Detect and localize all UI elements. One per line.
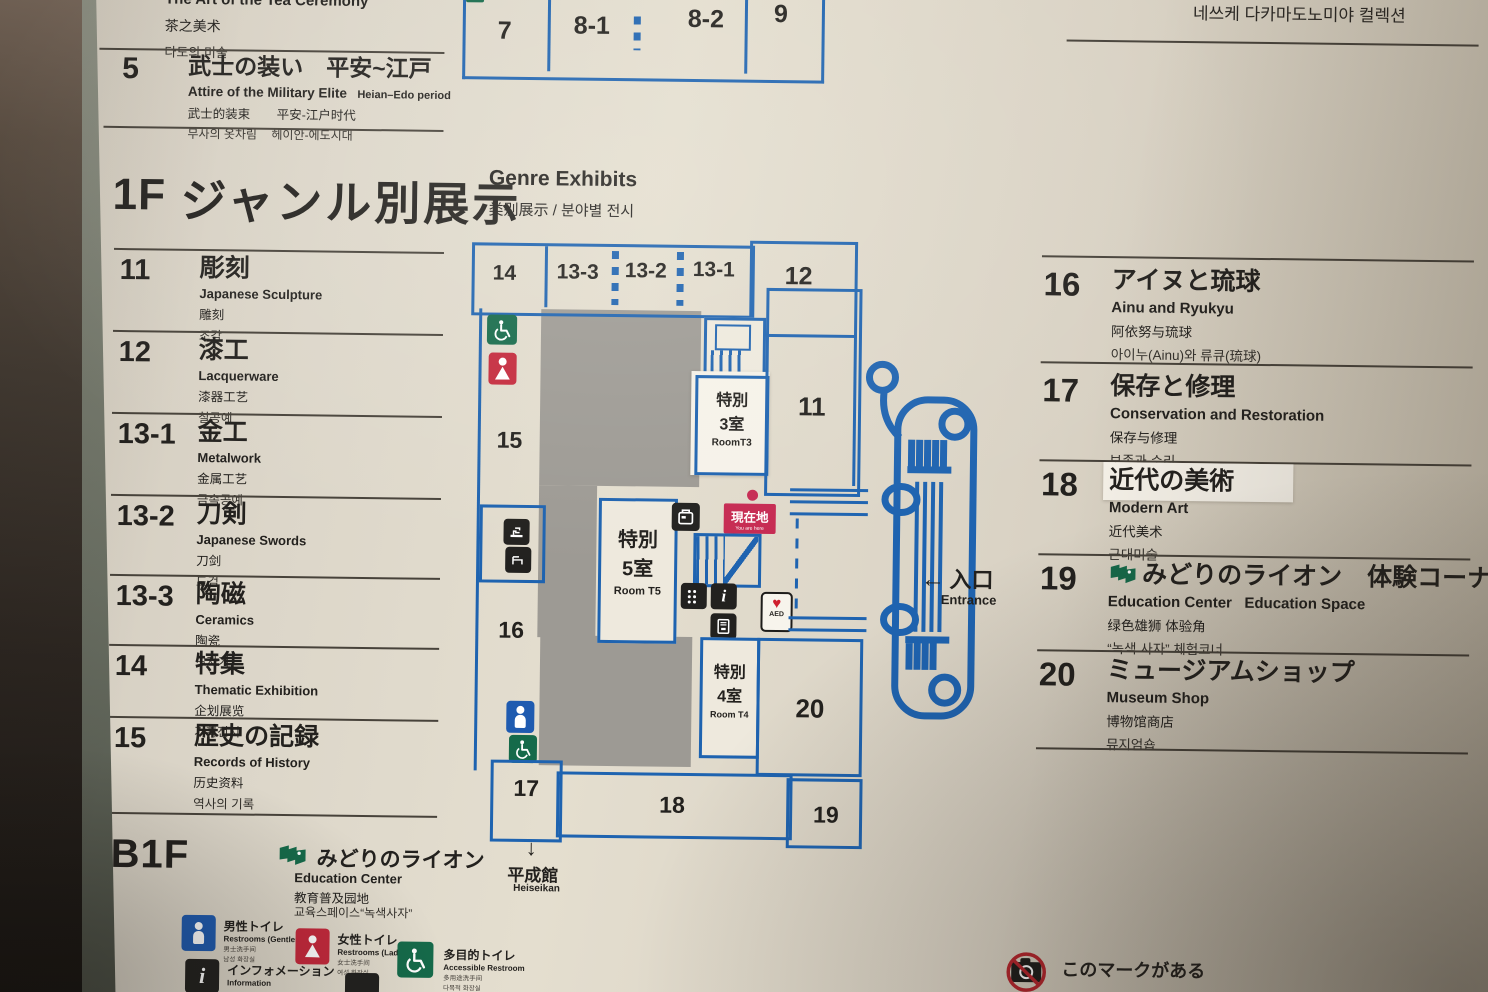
entry-zh: 近代美术 xyxy=(1109,520,1486,545)
green-lion-icon xyxy=(276,844,308,866)
entry-ja: 特集 xyxy=(195,651,450,681)
entry-en: Modern Art xyxy=(1109,499,1486,521)
map-wall xyxy=(544,246,548,307)
room-t3-ja2: 3室 xyxy=(698,410,766,435)
entry-en: Records of History xyxy=(194,754,449,772)
entry-tea-zh: 茶之美术 xyxy=(165,16,369,38)
map-room-13-3: 13-3 xyxy=(557,260,599,285)
information-icon: i xyxy=(711,583,737,609)
b1f-en: Education Center xyxy=(294,870,402,886)
entry-ja: 歴史の記録 xyxy=(194,723,449,753)
entry-zh: 金属工艺 xyxy=(197,468,452,490)
entry-en: Conservation and Restoration xyxy=(1110,405,1487,427)
entry-en: Ainu and Ryukyu xyxy=(1111,299,1488,321)
divider xyxy=(1042,255,1474,262)
you-are-here-ja: 現在地 xyxy=(724,506,776,526)
right-entry-20: 20 ミュージアムショップ Museum Shop 博物馆商店 뮤지엄숍 xyxy=(1038,655,1484,757)
arrow-down-icon: ↓ xyxy=(526,835,537,861)
right-entry-16: 16 アイヌと琉球 Ainu and Ryukyu 阿依努与琉球 아이누(Ain… xyxy=(1043,265,1488,367)
map-room-t4: 特別 4室 Room T4 xyxy=(699,637,760,759)
entry-ja: 保存と修理 xyxy=(1110,372,1487,405)
map-dotted-divider xyxy=(633,16,640,50)
entry-en: Museum Shop xyxy=(1106,689,1483,711)
right-entry-17: 17 保存と修理 Conservation and Restoration 保存… xyxy=(1041,371,1487,473)
entry-ja-text: みどりのライオン 体験コーナー xyxy=(1142,561,1488,594)
map-stairs-central xyxy=(693,533,762,588)
map-room-17: 17 xyxy=(490,760,563,843)
accessible-icon xyxy=(487,314,517,344)
lockers-icon xyxy=(681,583,707,609)
wall xyxy=(0,0,82,992)
you-are-here-badge: 現在地 You are here xyxy=(724,503,776,534)
room-number: 15 xyxy=(114,722,147,755)
accessible-icon-cutoff xyxy=(466,0,484,2)
legend-accessible: 多目的トイレ Accessible Restroom 多用途洗手间 다목적 화장… xyxy=(443,946,574,992)
map-wall xyxy=(547,0,551,71)
entrance-en: Entrance xyxy=(941,592,997,608)
map-room-9: 9 xyxy=(774,0,788,29)
entry-en: Japanese Sculpture xyxy=(199,286,454,304)
entry-en: Thematic Exhibition xyxy=(195,682,450,700)
floor1-title-en: Genre Exhibits xyxy=(489,167,638,193)
entry-en: Ceramics xyxy=(195,612,450,630)
divider xyxy=(114,248,444,254)
room-number: 18 xyxy=(1041,465,1078,503)
entry5-en: Attire of the Military Elite xyxy=(188,84,347,101)
room-t5-ja2: 5室 xyxy=(601,552,674,582)
map-room-number: 17 xyxy=(513,775,539,802)
room-t4-ja2: 4室 xyxy=(702,682,756,707)
entry-zh: 绿色雄狮 体验角 xyxy=(1107,614,1484,639)
room-t3-ja1: 特別 xyxy=(698,386,766,411)
legend-ja: インフォメーション xyxy=(227,961,357,980)
entry-ja: 陶磁 xyxy=(196,581,451,611)
entry-zh: 漆器工艺 xyxy=(198,386,453,408)
room-number: 13-3 xyxy=(116,580,174,614)
room-t5-ja1: 特別 xyxy=(601,523,674,553)
accessible-icon xyxy=(397,941,433,977)
room-number: 17 xyxy=(1042,371,1079,409)
vending-machine-icon xyxy=(710,613,736,639)
room-number: 16 xyxy=(1043,265,1080,303)
room-number: 14 xyxy=(115,650,148,683)
map-room-16: 16 xyxy=(498,617,524,644)
floor1-title-ja: ジャンル別展示 xyxy=(180,165,521,235)
legend-info: インフォメーション Information xyxy=(227,961,357,989)
map-dashed-wall xyxy=(795,518,799,614)
entry-en: Japanese Swords xyxy=(196,532,451,550)
aed-label: AED xyxy=(763,611,791,618)
coin-locker-icon xyxy=(672,503,700,531)
room-t4-ja1: 特別 xyxy=(703,658,757,683)
entry-zh: 博物馆商店 xyxy=(1106,710,1483,735)
map-wall xyxy=(744,0,748,74)
room-number: 19 xyxy=(1040,559,1077,597)
photo-of-floor-guide-sign: The Art of the Tea Ceremony 茶之美术 다도의 미술 … xyxy=(0,0,1488,992)
entry5-period-zh: 平安-江户时代 xyxy=(277,108,356,123)
map-room-number: 12 xyxy=(785,262,813,291)
womens-restroom-icon xyxy=(488,353,516,385)
map-stair-steps xyxy=(711,350,743,372)
map-room-11: 11 xyxy=(764,288,863,497)
legend-ja: 多目的トイレ xyxy=(443,946,573,965)
top-right-partial-korean: 네쓰케 다카마도노미야 컬렉션 xyxy=(1193,0,1406,27)
entry5-zh: 武士的装束 xyxy=(188,107,251,122)
map-bridge xyxy=(790,500,868,504)
drinking-fountain-icon xyxy=(503,519,529,545)
entry-zh: 刀剑 xyxy=(196,550,451,572)
map-room-7: 7 xyxy=(498,17,512,46)
map-stair-box xyxy=(715,324,751,350)
map-room-15: 15 xyxy=(497,427,523,454)
entry-ja: 彫刻 xyxy=(200,255,455,285)
legend-en: Information xyxy=(227,978,357,989)
map-room-20: 20 xyxy=(756,638,864,777)
room-t4-en: Room T4 xyxy=(702,709,756,720)
right-entry-18: 18 近代の美術 Modern Art 近代美术 근대미술 xyxy=(1040,465,1486,567)
floor-label-b1f: B1F xyxy=(110,832,189,878)
map-bridge xyxy=(789,616,867,620)
arrow-left-icon: ← xyxy=(921,566,945,593)
you-are-here-dot xyxy=(747,490,758,501)
you-are-here-en: You are here xyxy=(724,525,776,532)
map-courtyard xyxy=(537,485,597,638)
floor1-subtitle: 类别展示 / 분야별 전시 xyxy=(488,199,634,222)
map-room-number: 19 xyxy=(813,802,839,829)
entry-ja: みどりのライオン 体験コーナー xyxy=(1108,560,1485,593)
room-number: 13-2 xyxy=(117,500,175,534)
entry-en: Education Center Education Space xyxy=(1108,593,1485,615)
room-t5-en: Room T5 xyxy=(601,585,674,598)
map-room-14: 14 xyxy=(493,262,517,286)
sign-content: The Art of the Tea Ceremony 茶之美术 다도의 미술 … xyxy=(0,0,1488,992)
entry-ja: アイヌと琉球 xyxy=(1112,266,1488,299)
map-room-number: 18 xyxy=(659,792,685,819)
map-room-number: 20 xyxy=(795,693,824,724)
entry-ja: 近代の美術 xyxy=(1109,466,1486,499)
map-courtyard xyxy=(539,635,693,767)
map-room-18: 18 xyxy=(556,771,793,840)
mens-restroom-icon xyxy=(506,701,534,733)
entrance-stairs-drawing xyxy=(856,351,991,753)
map-room-8-1: 8-1 xyxy=(574,12,610,41)
divider xyxy=(1067,40,1479,47)
map-room-band-13: 14 13-3 13-2 13-1 xyxy=(471,242,755,318)
floor-map-1f: 14 13-3 13-2 13-1 12 15 xyxy=(449,234,1037,891)
entry-en: Lacquerware xyxy=(198,368,453,386)
entry-ja: 刀剣 xyxy=(197,501,452,531)
room-number: 20 xyxy=(1039,655,1076,693)
entry-room5: 5 武士の装い 平安~江戸 Attire of the Military Eli… xyxy=(121,52,462,146)
room-number: 12 xyxy=(119,336,152,369)
map-courtyard xyxy=(539,309,701,487)
upper-floor-map-fragment: 7 8-1 8-2 9 xyxy=(462,0,825,84)
entrance-label: ← 入口 xyxy=(921,562,994,595)
left-entry-15: 15 歴史の記録 Records of History 历史资料 역사의 기록 xyxy=(113,722,449,815)
map-room-13-2: 13-2 xyxy=(625,259,667,284)
entrance-ja: 入口 xyxy=(949,567,993,593)
no-photography-icon xyxy=(1005,949,1052,992)
green-lion-icon xyxy=(1108,563,1138,584)
map-room-t3: 特別 3室 RoomT3 xyxy=(694,375,769,476)
entry-ja: ミュージアムショップ xyxy=(1107,656,1484,689)
heiseikan-en: Heiseikan xyxy=(513,883,560,895)
map-room-13-1: 13-1 xyxy=(693,258,735,283)
entry-ko: 역사의 기록 xyxy=(193,793,448,815)
legend-icon-cutoff xyxy=(345,973,379,992)
legend-ko: 다목적 화장실 xyxy=(443,982,573,992)
room-t3-en: RoomT3 xyxy=(698,437,766,449)
information-icon: i xyxy=(185,959,219,992)
map-room-19: 19 xyxy=(786,778,863,849)
floor-label-1f: 1F xyxy=(112,170,166,221)
mens-restroom-icon xyxy=(181,915,215,951)
entry-tea-en: The Art of the Tea Ceremony xyxy=(165,0,369,10)
bench-icon xyxy=(505,547,531,573)
entry-en: Metalwork xyxy=(197,450,452,468)
entry-zh: 雕刻 xyxy=(199,304,454,326)
entry-ja: 漆工 xyxy=(199,337,454,367)
map-room-8-2: 8-2 xyxy=(688,5,724,34)
map-bridge xyxy=(790,512,868,516)
aed-icon: ♥ AED xyxy=(760,592,792,632)
no-photo-note: このマークがある xyxy=(1061,956,1205,984)
entry-zh: 保存与修理 xyxy=(1110,426,1487,451)
map-room-number: 11 xyxy=(798,391,826,422)
entry-zh: 历史资料 xyxy=(193,772,448,794)
womens-restroom-icon xyxy=(295,928,329,964)
room-number: 5 xyxy=(122,52,139,86)
room-number: 11 xyxy=(120,254,151,287)
entry-ja: 金工 xyxy=(198,419,453,449)
map-room-t5: 特別 5室 Room T5 xyxy=(597,498,678,644)
map-dotted-divider xyxy=(676,252,684,306)
entry-zh: 阿依努与琉球 xyxy=(1111,320,1488,345)
map-dotted-divider xyxy=(611,251,619,305)
room-number: 13-1 xyxy=(118,418,176,452)
entry5-ja: 武士の装い 平安~江戸 xyxy=(188,53,462,83)
right-entry-19: 19 みどりのライオン 体験コーナー Education Center Educ… xyxy=(1039,559,1485,661)
map-bridge xyxy=(788,628,866,632)
entry5-period-en: Heian–Edo period xyxy=(357,89,451,102)
